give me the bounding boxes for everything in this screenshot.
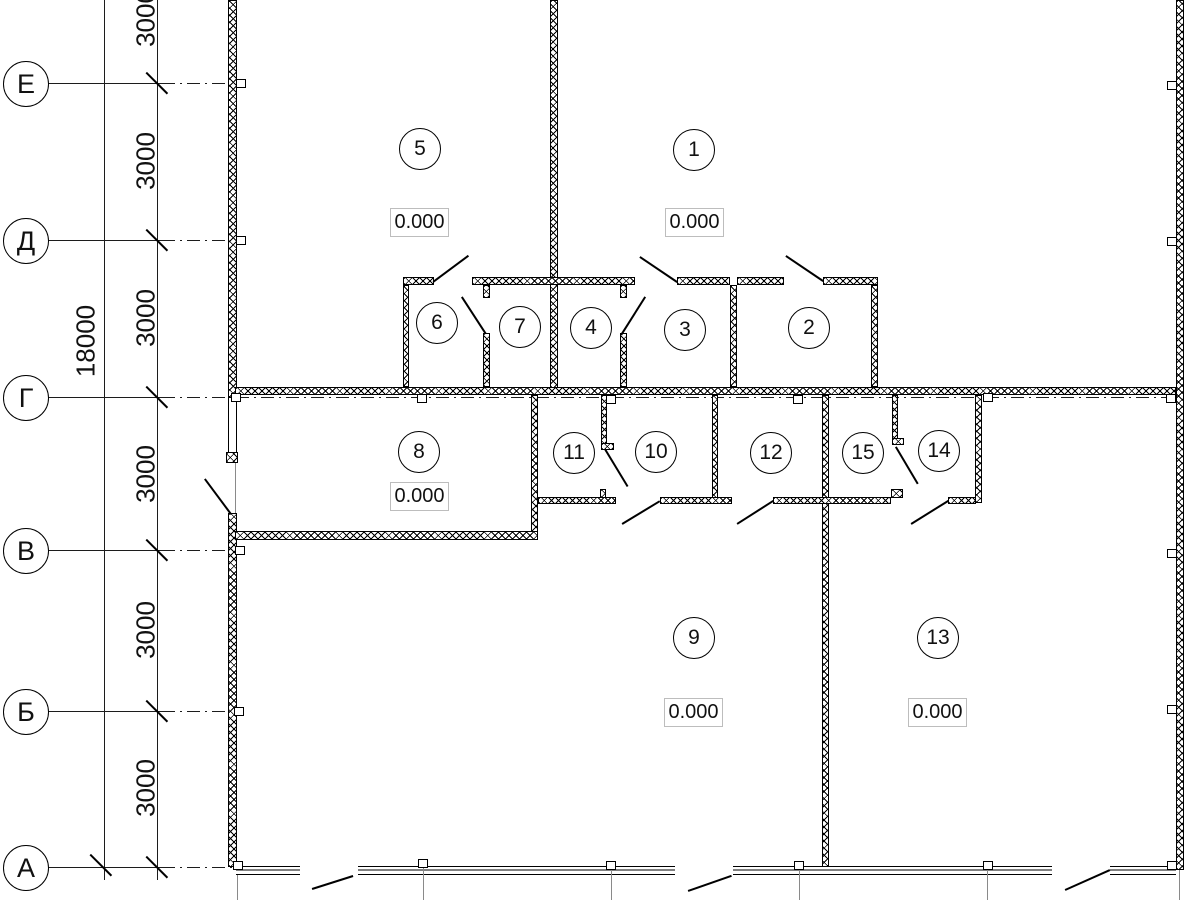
wall-room14-right	[975, 395, 982, 503]
marker-right-wall-b	[1167, 705, 1177, 714]
door-leaf-rooms6-7	[461, 296, 486, 334]
extension-line-6	[1179, 870, 1180, 900]
axis-line-a-dashdot	[162, 867, 235, 868]
axis-line-b-dashdot	[162, 711, 228, 712]
wall-room11-left	[531, 395, 538, 539]
overall-dim-tick-a	[90, 854, 112, 876]
marker-left-wall-v	[235, 546, 245, 555]
wall-exterior-left-lower	[228, 513, 237, 867]
elevation-room1: 0.000	[665, 208, 724, 237]
dim-3000-3: 3000	[131, 445, 162, 503]
marker-left-wall-d	[236, 236, 246, 245]
partition-3-2	[730, 285, 737, 387]
dim-18000: 18000	[71, 305, 102, 377]
marker-axis-a-5	[983, 861, 993, 870]
room-circle-15: 15	[842, 432, 884, 474]
wall-top-rooms7-4	[472, 277, 635, 285]
marker-right-wall-d	[1167, 237, 1177, 246]
axis-line-g	[47, 397, 162, 398]
partition-6-7-stub	[483, 285, 490, 298]
wall-bottom-room15-stub	[891, 489, 903, 498]
wall-exterior-left-upper	[228, 0, 237, 398]
marker-axis-a-2	[418, 859, 428, 868]
partition-4-3-stub	[620, 285, 627, 298]
window-band-3	[733, 866, 1052, 875]
extension-line-4	[799, 868, 800, 900]
room-circle-3: 3	[664, 309, 706, 351]
dim-3000-5: 3000	[131, 759, 162, 817]
marker-axis-a-1	[233, 861, 243, 870]
extension-line-2	[423, 868, 424, 900]
overall-dimension-line	[104, 0, 105, 880]
marker-right-wall-e	[1167, 81, 1177, 90]
extension-line-5	[987, 868, 988, 900]
door-leaf-rooms4-3	[620, 296, 645, 335]
door-leaf-room10-bottom	[622, 500, 660, 524]
door-leaf-room6	[433, 255, 469, 283]
dim-3000-4: 3000	[131, 601, 162, 659]
wall-left-opening-frame	[228, 398, 237, 452]
marker-axis-a-6	[1167, 861, 1177, 870]
room-circle-5: 5	[399, 128, 441, 170]
room-circle-14: 14	[918, 430, 960, 472]
marker-axis-g-4	[793, 395, 803, 404]
wall-bottom-room14	[948, 497, 976, 504]
dim-3000-1: 3000	[131, 132, 162, 190]
room-circle-6: 6	[416, 302, 458, 344]
partition-10-12	[712, 395, 718, 503]
dim-3000-0: 3000	[131, 0, 162, 47]
room-circle-2: 2	[788, 307, 830, 349]
elevation-room9: 0.000	[664, 698, 723, 727]
axis-line-g-plan	[236, 397, 1176, 398]
marker-left-wall-e	[236, 79, 246, 88]
wall-left-pier	[226, 452, 238, 463]
door-leaf-rooms11-10	[604, 448, 628, 486]
dim-3000-2: 3000	[131, 289, 162, 347]
marker-axis-g-3	[606, 395, 616, 404]
room-circle-8: 8	[398, 431, 440, 473]
wall-room6-left	[403, 285, 409, 387]
partition-11-10-hook	[601, 443, 614, 450]
axis-line-v-dashdot	[162, 550, 228, 551]
partition-15-14-hook	[892, 438, 904, 445]
elevation-room13: 0.000	[908, 698, 967, 727]
extension-line-3	[611, 868, 612, 900]
door-leaf-band-2	[688, 875, 732, 892]
door-leaf-room2	[786, 255, 824, 281]
marker-axis-g-1	[231, 393, 241, 402]
room-circle-7: 7	[499, 306, 541, 348]
room-circle-10: 10	[635, 431, 677, 473]
marker-right-wall-v	[1167, 549, 1177, 558]
wall-axis-g	[235, 387, 1176, 395]
window-band-1	[236, 866, 300, 875]
door-leaf-room3	[640, 256, 678, 282]
wall-room2-right	[871, 285, 878, 387]
marker-left-wall-b	[234, 707, 244, 716]
door-leaf-band-1	[312, 875, 353, 890]
marker-axis-a-4	[794, 861, 804, 870]
axis-line-d-dashdot	[162, 240, 228, 241]
axis-circle-e: Е	[3, 61, 49, 107]
room-circle-13: 13	[917, 617, 959, 659]
marker-axis-g-2	[417, 394, 427, 403]
door-leaf-band-3	[1065, 869, 1110, 890]
axis-circle-v: В	[3, 528, 49, 574]
wall-bottom-room8	[235, 531, 538, 540]
wall-top-room2-left	[737, 277, 784, 285]
marker-axis-g-5	[983, 393, 993, 402]
left-door-opening-plane	[235, 463, 236, 513]
axis-line-v	[47, 550, 162, 551]
elevation-room8: 0.000	[390, 482, 449, 511]
wall-top-room3	[677, 277, 730, 285]
axis-circle-b: Б	[3, 689, 49, 735]
room-circle-9: 9	[673, 617, 715, 659]
room-circle-1: 1	[673, 129, 715, 171]
floor-plan-drawing: { "drawing": { "kind": "architectural fl…	[0, 0, 1200, 900]
wall-top-room6-left	[403, 277, 434, 285]
axis-line-e-dashdot	[162, 83, 228, 84]
wall-bottom-room11	[538, 497, 616, 504]
room-circle-11: 11	[553, 432, 595, 474]
marker-axis-g-6	[1166, 394, 1176, 403]
axis-line-g-dashdot	[162, 397, 228, 398]
axis-circle-d: Д	[3, 218, 49, 264]
marker-axis-a-3	[606, 861, 616, 870]
partition-6-7	[483, 333, 490, 387]
axis-circle-g: Г	[3, 375, 49, 421]
window-band-2	[358, 866, 675, 875]
axis-line-b	[47, 711, 162, 712]
axis-line-d	[47, 240, 162, 241]
wall-bottom-room11-stub	[600, 489, 606, 498]
partition-4-3	[620, 333, 627, 387]
wall-top-room2-right	[823, 277, 878, 285]
door-leaf-room12-bottom	[737, 500, 774, 525]
room-circle-4: 4	[570, 307, 612, 349]
door-leaf-rooms15-14	[895, 446, 918, 484]
room-circle-12: 12	[750, 432, 792, 474]
door-leaf-left-entrance	[204, 478, 232, 514]
wall-central-rooms-5-1	[550, 0, 558, 395]
extension-line-1	[237, 875, 238, 900]
wall-divider-9-13	[822, 395, 829, 870]
axis-line-e	[47, 83, 162, 84]
door-leaf-room14-bottom	[911, 500, 949, 525]
wall-bottom-room10	[660, 497, 732, 504]
wall-bottom-rooms12-15	[773, 497, 891, 504]
elevation-room5: 0.000	[390, 208, 449, 237]
axis-circle-a: А	[3, 845, 49, 891]
wall-exterior-right	[1176, 0, 1184, 870]
